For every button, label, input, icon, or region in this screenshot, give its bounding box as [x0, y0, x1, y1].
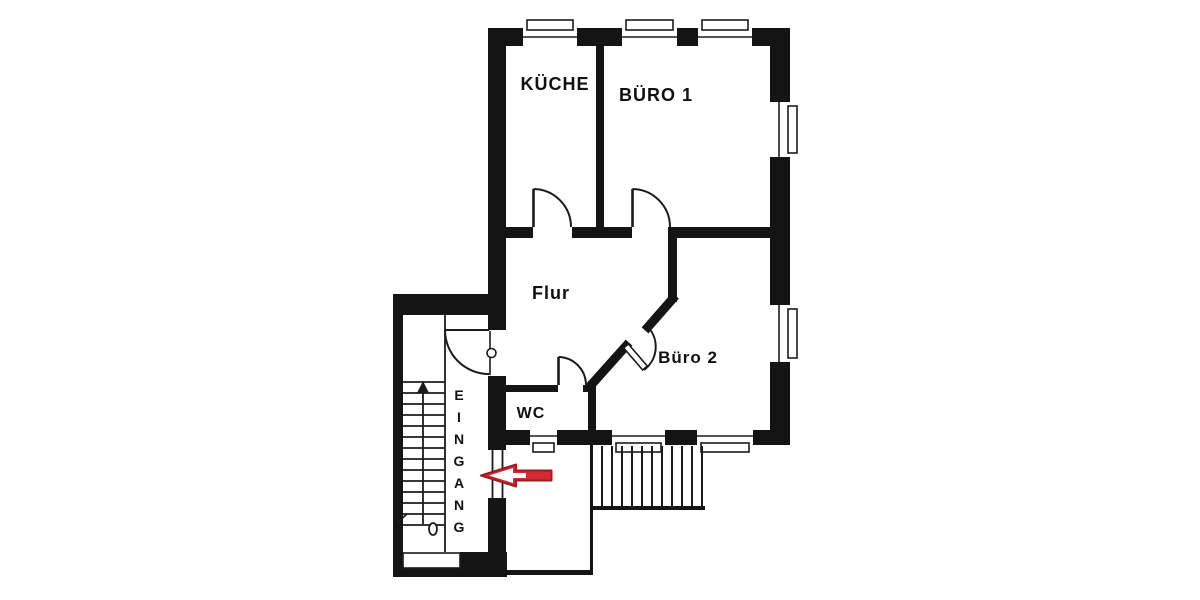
buero1-label: BÜRO 1 [619, 85, 693, 105]
wall-segment [506, 227, 533, 238]
wall-segment [665, 430, 697, 445]
window-sill [788, 309, 797, 358]
wall-segment [557, 430, 612, 445]
flur-label: Flur [532, 283, 570, 303]
window-sill [533, 443, 554, 452]
wall-segment [506, 385, 558, 392]
wall-segment [668, 238, 677, 302]
wall-segment [393, 294, 403, 568]
wall-segment [460, 552, 507, 577]
eingang-letter: E [454, 387, 463, 403]
wall-segment [505, 570, 592, 575]
window-sill [788, 106, 797, 153]
wall-segment [753, 430, 790, 445]
window-sill [626, 20, 673, 30]
wall-segment [596, 46, 604, 227]
window-sill [527, 20, 573, 30]
window-sill [701, 443, 749, 452]
stair-start-newel [429, 523, 437, 535]
wall-segment [770, 157, 790, 305]
eingang-letter: G [454, 453, 465, 469]
eingang-letter: G [454, 519, 465, 535]
wc-label: WC [517, 405, 546, 422]
wall-segment [668, 227, 770, 238]
eingang-letter: I [457, 409, 461, 425]
wall-segment [393, 294, 489, 315]
wall-segment [488, 376, 506, 450]
wall-segment [488, 28, 506, 330]
wall-segment [572, 227, 632, 238]
wall-segment [770, 28, 790, 102]
door-knob [487, 349, 496, 358]
wall-segment [677, 28, 698, 46]
wall-segment [505, 430, 530, 445]
floor-plan: KÜCHE BÜRO 1 Flur Büro 2 WC E I N G A N … [0, 0, 1200, 600]
floor-plan-canvas: KÜCHE BÜRO 1 Flur Büro 2 WC E I N G A N … [0, 0, 1200, 600]
wall-segment [393, 568, 460, 577]
buero2-label: Büro 2 [658, 348, 718, 367]
eingang-letter: N [454, 431, 464, 447]
eingang-letter: N [454, 497, 464, 513]
kueche-label: KÜCHE [520, 74, 589, 94]
wall-segment [592, 506, 705, 510]
window-sill [702, 20, 748, 30]
wall-segment [577, 28, 622, 46]
eingang-letter: A [454, 475, 464, 491]
